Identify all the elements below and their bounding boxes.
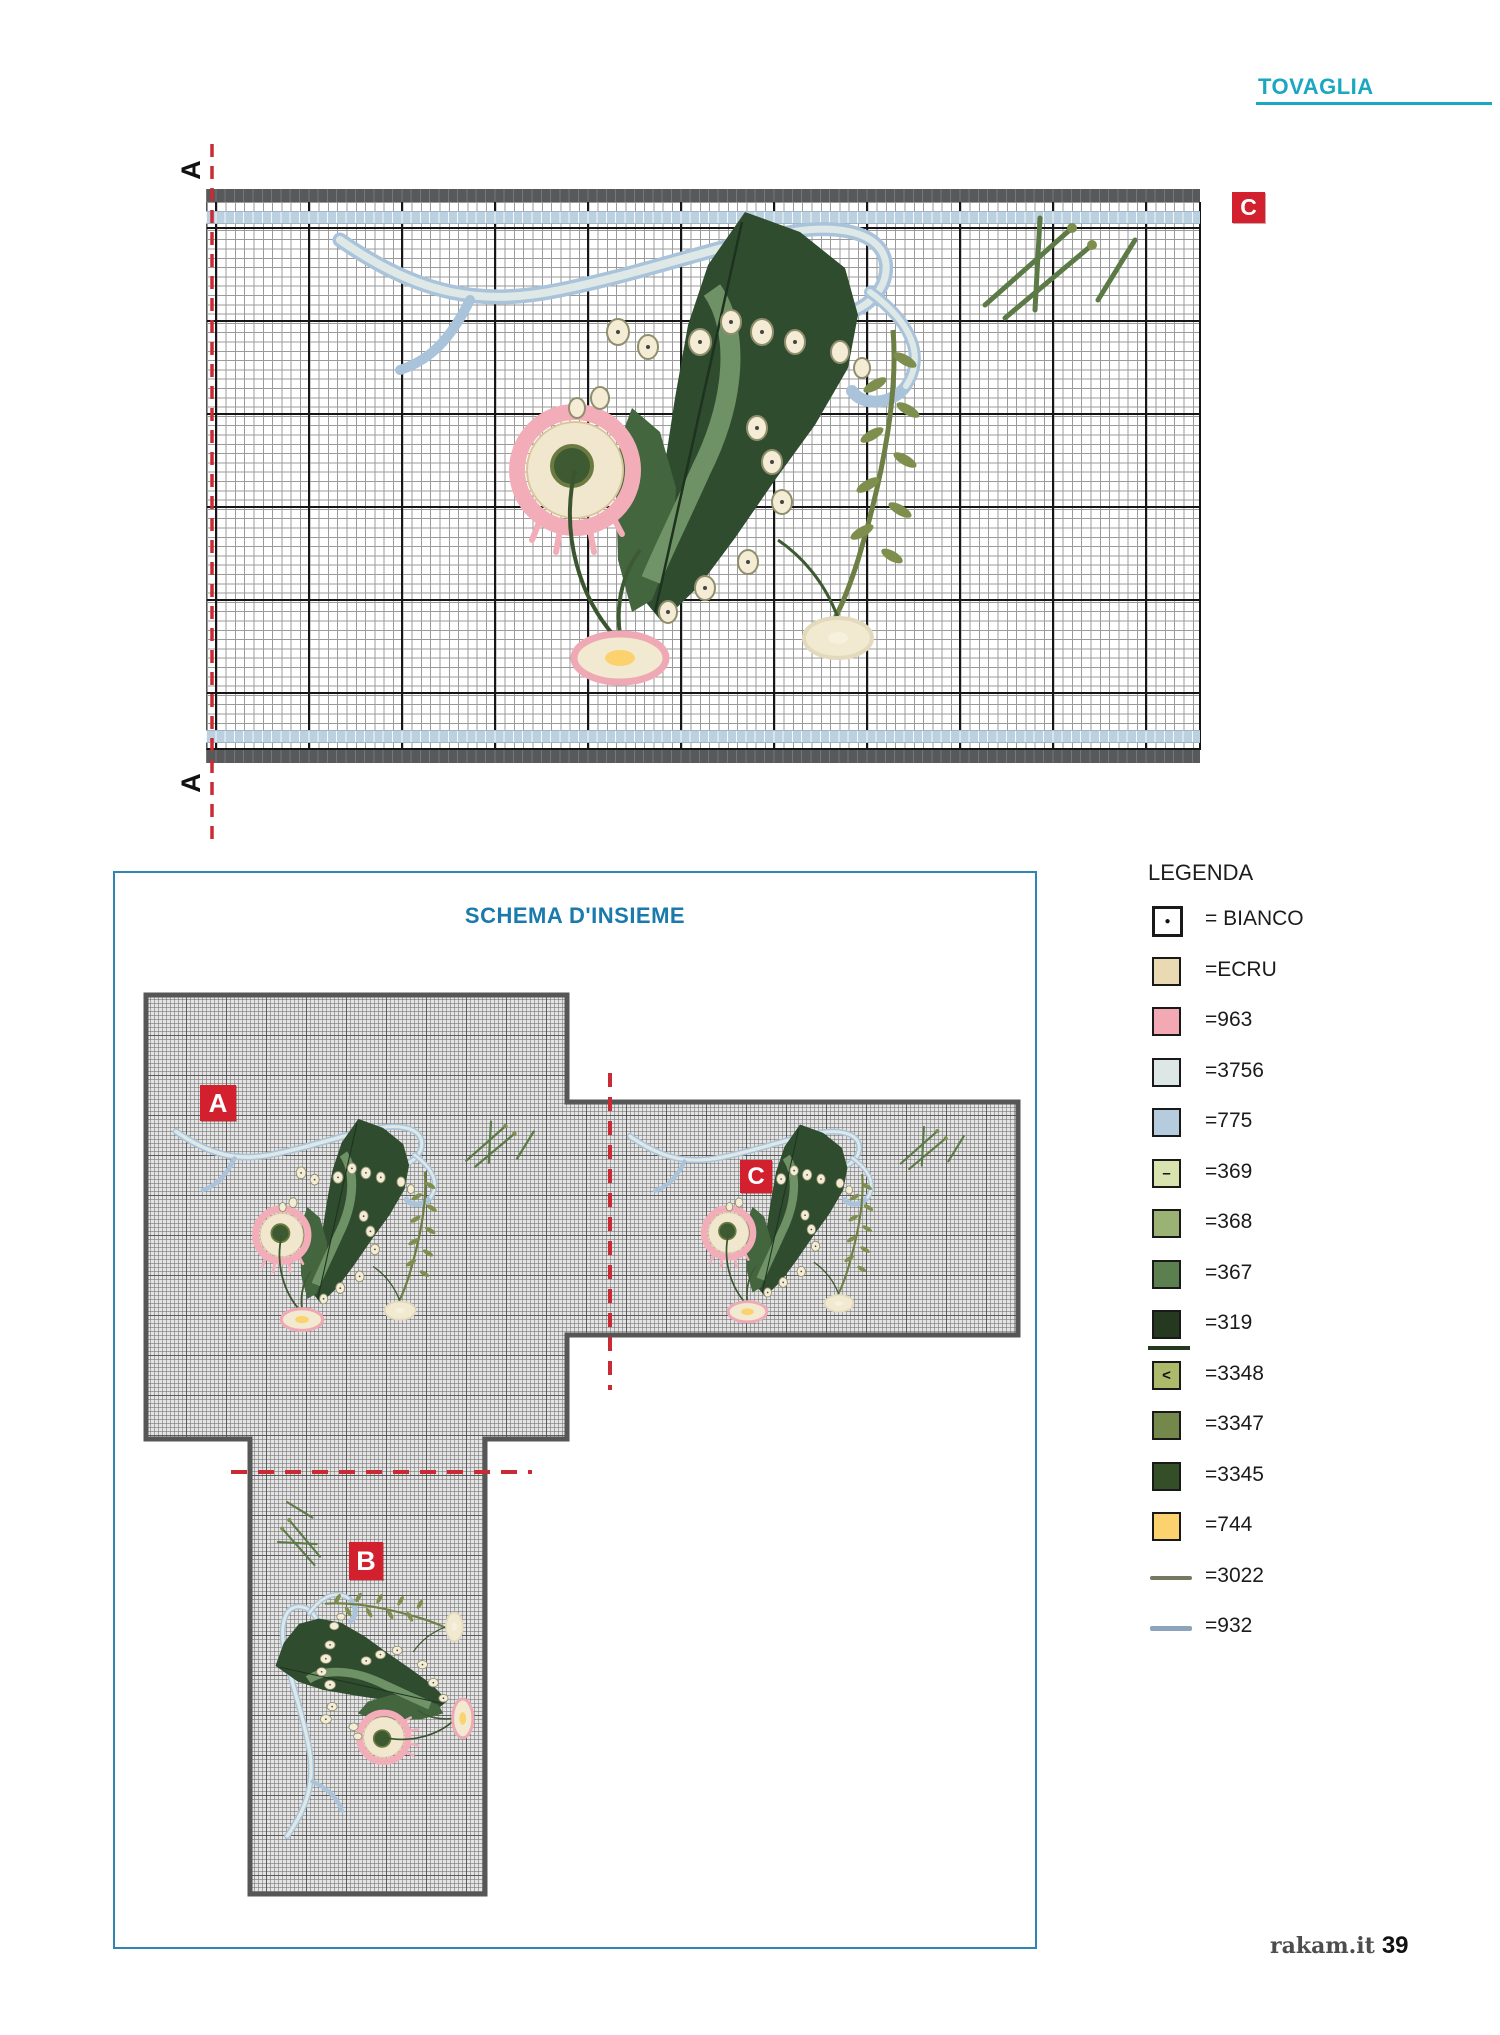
- main-stitch-chart: [206, 189, 1200, 763]
- legend-item-775: =775: [1148, 1108, 1408, 1138]
- legend-item-bianco: ● = BIANCO: [1148, 906, 1408, 936]
- chart-blue-border-row-bottom: [206, 730, 1200, 743]
- less-than-symbol: <: [1154, 1363, 1179, 1388]
- swatch-ecru: [1152, 957, 1181, 986]
- legend-item-3022: =3022: [1148, 1563, 1408, 1593]
- swatch-319: [1152, 1310, 1181, 1339]
- legend-label: =369: [1205, 1160, 1252, 1184]
- schema-label-c: C: [740, 1160, 772, 1193]
- legend-label: =744: [1205, 1513, 1252, 1537]
- legend-label: =3348: [1205, 1362, 1264, 1386]
- legend-label: =ECRU: [1205, 958, 1277, 982]
- chart-top-border-bar: [206, 189, 1200, 202]
- legend-label: =932: [1205, 1614, 1252, 1638]
- legend-label: = BIANCO: [1205, 907, 1304, 931]
- page-title: TOVAGLIA: [1258, 74, 1490, 100]
- swatch-367: [1152, 1260, 1181, 1289]
- swatch-3756: [1152, 1058, 1181, 1087]
- chart-grid: [206, 202, 1201, 750]
- legend-item-3347: =3347: [1148, 1411, 1408, 1441]
- legend-item-368: =368: [1148, 1209, 1408, 1239]
- swatch-744: [1152, 1512, 1181, 1541]
- legend-item-3345: =3345: [1148, 1462, 1408, 1492]
- chart-label-c: C: [1232, 192, 1265, 223]
- magazine-page: TOVAGLIA SCHEMA D'INSIEME: [0, 0, 1500, 2035]
- schema-title: SCHEMA D'INSIEME: [113, 903, 1037, 929]
- legend: LEGENDA ● = BIANCO =ECRU =963 =3756 =775…: [1148, 860, 1408, 1664]
- legend-item-932: =932: [1148, 1613, 1408, 1643]
- chart-bottom-border-bar: [206, 750, 1200, 763]
- legend-item-ecru: =ECRU: [1148, 957, 1408, 987]
- legend-item-3348: < =3348: [1148, 1361, 1408, 1391]
- swatch-963: [1152, 1007, 1181, 1036]
- schema-label-b: B: [349, 1542, 383, 1580]
- chart-side-marker-top: A: [176, 155, 206, 185]
- legend-item-319: =319: [1148, 1310, 1408, 1340]
- swatch-3347: [1152, 1411, 1181, 1440]
- legend-label: =775: [1205, 1109, 1252, 1133]
- swatch-368: [1152, 1209, 1181, 1238]
- legend-item-367: =367: [1148, 1260, 1408, 1290]
- backstitch-underline-319: [1148, 1346, 1190, 1350]
- title-underline: [1256, 102, 1492, 105]
- legend-item-963: =963: [1148, 1007, 1408, 1037]
- swatch-775: [1152, 1108, 1181, 1137]
- line-swatch-3022: [1150, 1576, 1192, 1581]
- page-footer: rakam.it39: [1270, 1932, 1409, 1960]
- legend-label: =963: [1205, 1008, 1252, 1032]
- dot-symbol: ●: [1155, 909, 1180, 934]
- legend-item-3756: =3756: [1148, 1058, 1408, 1088]
- legend-label: =319: [1205, 1311, 1252, 1335]
- line-swatch-932: [1150, 1626, 1192, 1631]
- swatch-369: –: [1152, 1159, 1181, 1188]
- brand-name: rakam.it: [1270, 1933, 1375, 1959]
- swatch-3348: <: [1152, 1361, 1181, 1390]
- chart-blue-border-row-top: [206, 211, 1200, 224]
- legend-label: =367: [1205, 1261, 1252, 1285]
- swatch-bianco: ●: [1152, 906, 1183, 937]
- legend-label: =3345: [1205, 1463, 1264, 1487]
- page-number: 39: [1382, 1932, 1409, 1959]
- legend-title: LEGENDA: [1148, 860, 1408, 886]
- legend-item-369: – =369: [1148, 1159, 1408, 1189]
- dash-symbol: –: [1154, 1161, 1179, 1186]
- legend-label: =3022: [1205, 1564, 1264, 1588]
- legend-label: =3347: [1205, 1412, 1264, 1436]
- legend-item-744: =744: [1148, 1512, 1408, 1542]
- swatch-3345: [1152, 1462, 1181, 1491]
- schema-label-a: A: [200, 1085, 236, 1121]
- chart-side-marker-bottom: A: [176, 768, 206, 798]
- legend-label: =3756: [1205, 1059, 1264, 1083]
- legend-label: =368: [1205, 1210, 1252, 1234]
